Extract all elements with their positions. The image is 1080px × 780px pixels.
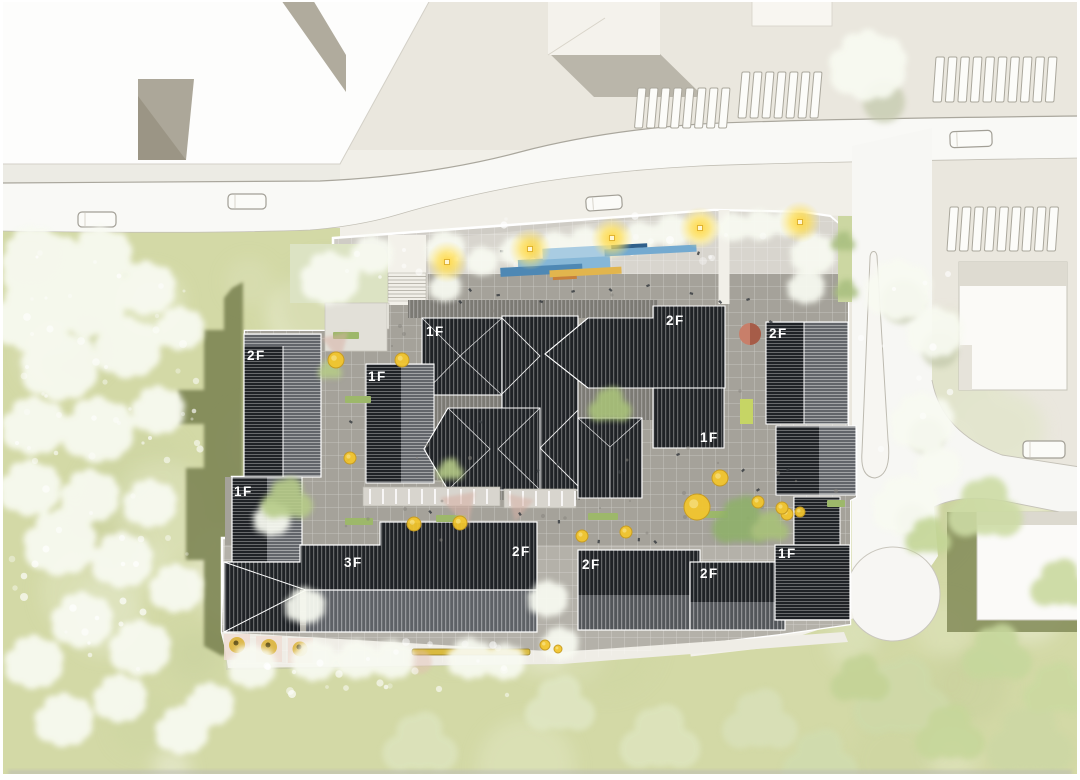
svg-text:3F: 3F: [344, 555, 363, 570]
svg-text:2F: 2F: [582, 557, 601, 572]
svg-text:1F: 1F: [778, 546, 797, 561]
svg-text:2F: 2F: [512, 544, 531, 559]
svg-text:1F: 1F: [234, 484, 253, 499]
svg-text:2F: 2F: [700, 566, 719, 581]
svg-text:1F: 1F: [368, 369, 387, 384]
svg-text:1F: 1F: [700, 430, 719, 445]
svg-text:1F: 1F: [426, 324, 445, 339]
svg-text:2F: 2F: [666, 313, 685, 328]
svg-text:2F: 2F: [247, 348, 266, 363]
svg-text:2F: 2F: [769, 326, 788, 341]
